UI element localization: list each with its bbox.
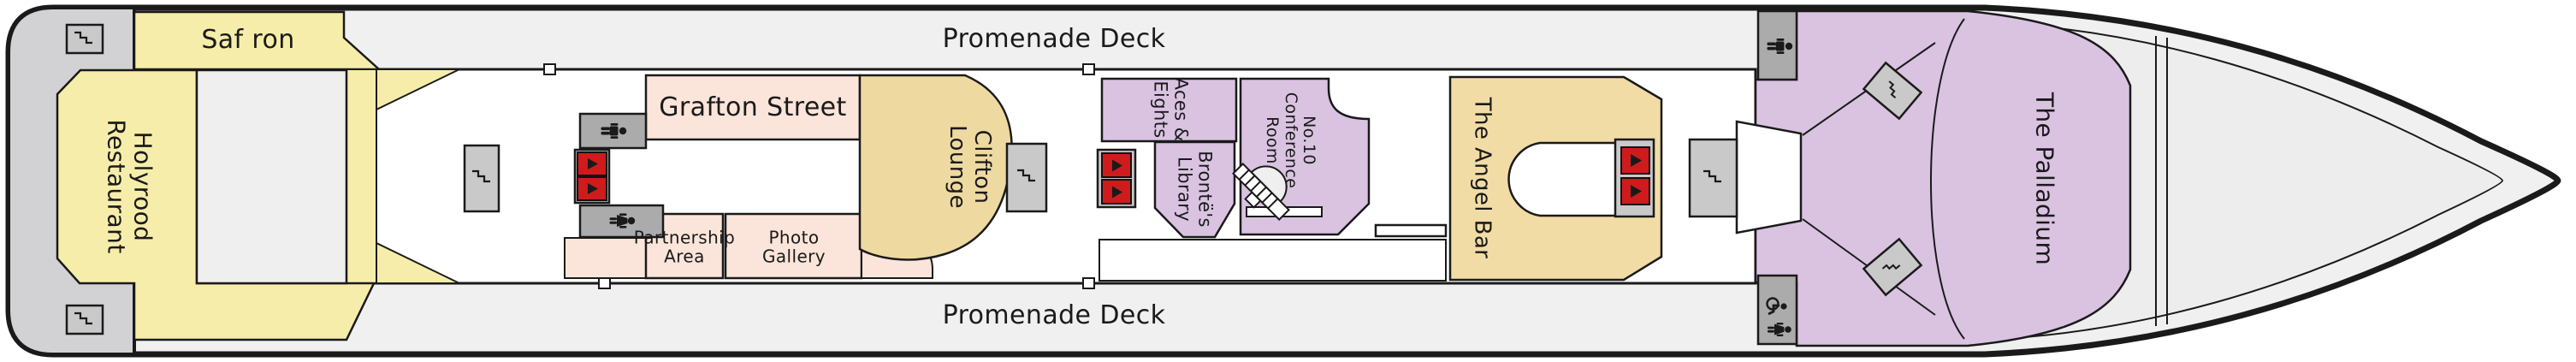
pink-corridor-strip [565,238,646,278]
stairs-icon [1690,139,1737,217]
elevator-icon [1615,139,1654,217]
corridor [1099,240,1446,281]
elevator-icon [1098,150,1135,207]
room-saffron [134,12,379,69]
palladium-stage [1737,122,1801,233]
room-aces-and-eights [1102,79,1236,141]
stairs-icon [1007,144,1046,211]
stairs-icon [67,25,103,53]
stairs-icon [67,306,103,334]
door-notch [599,278,610,288]
elevator-icon [575,150,609,203]
room-the-palladium [1756,11,2130,346]
room-photo-gallery [725,214,862,278]
ship-deck-plan: Saf ron Holyrood Restaurant Promenade De… [0,0,2576,362]
room-grafton-street [646,75,860,139]
stairs-icon [465,145,499,211]
wall-jog [1376,225,1446,236]
door-notch [1083,64,1094,74]
door-notch [544,64,555,74]
door-notch [1083,278,1094,288]
deck-plan-drawing [0,0,2576,362]
angel-bar-floor-cutout [1509,143,1620,216]
room-saffron-wrap [346,69,376,283]
galley-block [197,70,346,283]
